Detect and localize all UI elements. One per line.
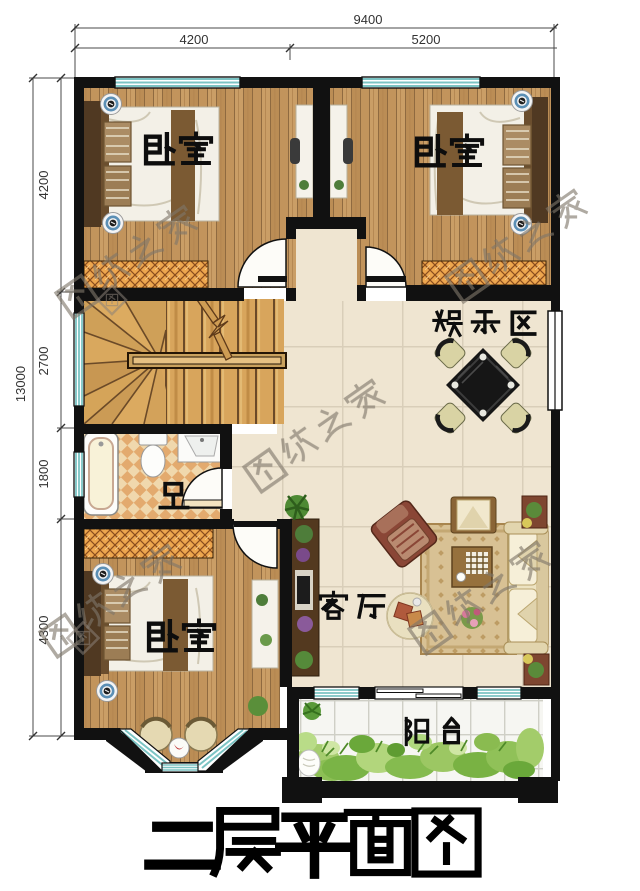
svg-text:5200: 5200: [412, 32, 441, 47]
svg-text:2700: 2700: [36, 347, 51, 376]
svg-text:4200: 4200: [180, 32, 209, 47]
svg-text:13000: 13000: [13, 366, 28, 402]
svg-text:9400: 9400: [354, 12, 383, 27]
svg-text:4200: 4200: [36, 171, 51, 200]
svg-text:1800: 1800: [36, 460, 51, 489]
